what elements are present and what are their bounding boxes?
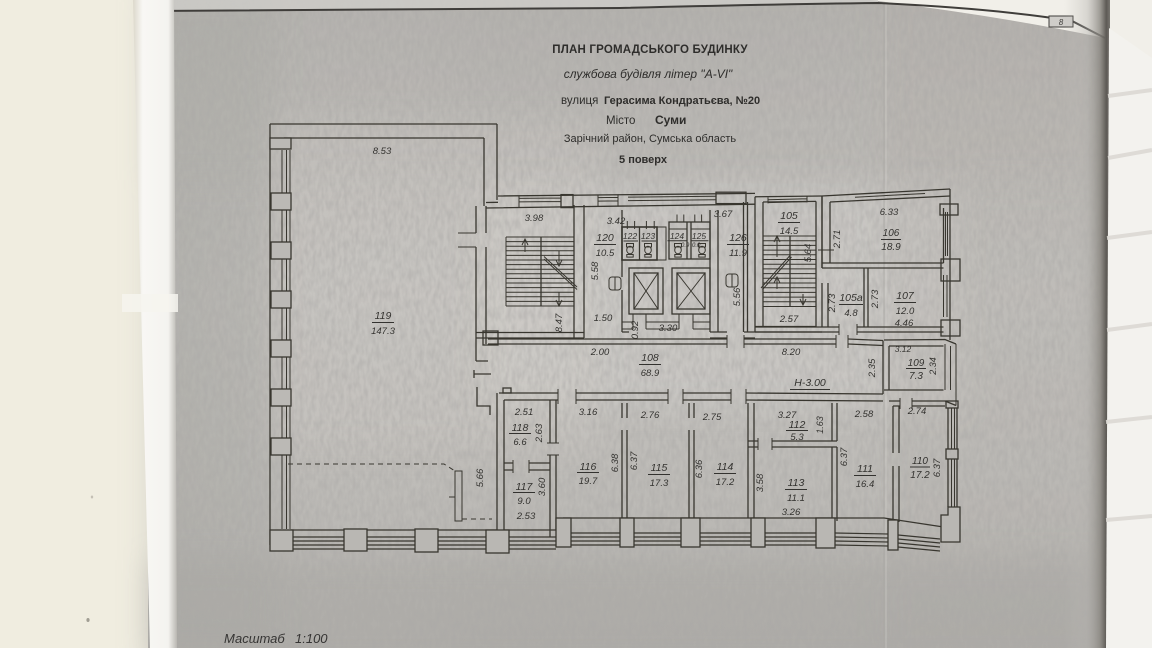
svg-text:1.50: 1.50	[594, 313, 613, 324]
svg-text:2.73: 2.73	[827, 293, 838, 313]
svg-text:1:100: 1:100	[295, 631, 328, 646]
svg-text:службова будівля літер "А-VI": службова будівля літер "А-VI"	[564, 67, 733, 81]
svg-text:2.73: 2.73	[870, 289, 881, 309]
svg-text:Герасима Кондратьєва, №20: Герасима Кондратьєва, №20	[604, 95, 760, 107]
svg-text:вулиця: вулиця	[561, 95, 598, 107]
svg-text:2.58: 2.58	[854, 409, 874, 420]
svg-text:Масштаб: Масштаб	[224, 631, 285, 646]
svg-text:4.8: 4.8	[844, 308, 858, 319]
svg-text:2.63: 2.63	[534, 423, 545, 443]
svg-text:0.0: 0.0	[692, 243, 701, 249]
svg-text:122: 122	[623, 231, 637, 241]
svg-text:110: 110	[912, 456, 928, 467]
svg-text:7.3: 7.3	[909, 371, 923, 382]
svg-text:120: 120	[596, 232, 614, 244]
svg-text:8.53: 8.53	[373, 146, 392, 157]
svg-text:11.9: 11.9	[729, 248, 748, 259]
svg-text:105: 105	[780, 210, 798, 222]
svg-text:2.35: 2.35	[867, 358, 878, 378]
svg-text:115: 115	[651, 462, 668, 474]
svg-text:2.53: 2.53	[516, 511, 536, 522]
svg-text:3.42: 3.42	[607, 216, 626, 227]
svg-text:2.00: 2.00	[590, 347, 610, 358]
svg-text:18.9: 18.9	[881, 242, 901, 253]
svg-text:ПЛАН ГРОМАДСЬКОГО БУДИНКУ: ПЛАН ГРОМАДСЬКОГО БУДИНКУ	[552, 44, 748, 56]
svg-text:Суми: Суми	[655, 113, 686, 127]
svg-text:111: 111	[857, 463, 873, 475]
svg-text:6.37: 6.37	[839, 447, 850, 466]
svg-text:3.26: 3.26	[782, 507, 801, 518]
svg-text:6.37: 6.37	[932, 458, 943, 477]
svg-text:3.30: 3.30	[659, 323, 678, 334]
svg-text:5.58: 5.58	[590, 261, 601, 280]
svg-text:117: 117	[516, 481, 534, 493]
svg-text:2.34: 2.34	[928, 357, 938, 376]
svg-text:2.74: 2.74	[907, 406, 927, 417]
svg-text:14.5: 14.5	[780, 226, 799, 237]
svg-text:6.38: 6.38	[610, 453, 621, 472]
svg-text:112: 112	[789, 419, 806, 431]
svg-text:118: 118	[512, 422, 529, 434]
svg-text:19.7: 19.7	[579, 476, 598, 487]
svg-text:8: 8	[1059, 18, 1064, 27]
svg-text:108: 108	[641, 352, 659, 364]
svg-text:Зарічний район, Сумська област: Зарічний район, Сумська область	[564, 133, 736, 145]
svg-text:6.37: 6.37	[629, 451, 640, 470]
svg-text:105а: 105а	[839, 292, 863, 304]
svg-text:3.58: 3.58	[755, 473, 766, 492]
svg-text:123: 123	[641, 231, 655, 241]
svg-text:17.3: 17.3	[650, 478, 669, 489]
svg-text:8.20: 8.20	[782, 347, 801, 358]
svg-text:119: 119	[375, 310, 392, 322]
svg-text:3.12: 3.12	[895, 344, 912, 354]
svg-text:Місто: Місто	[606, 115, 635, 127]
svg-text:0.9: 0.9	[681, 243, 690, 249]
svg-text:116: 116	[580, 461, 597, 473]
svg-text:6.6: 6.6	[513, 437, 527, 448]
svg-text:109: 109	[908, 358, 925, 369]
svg-text:2.51: 2.51	[514, 407, 534, 418]
svg-text:0.92: 0.92	[630, 320, 641, 339]
svg-text:2.75: 2.75	[702, 412, 722, 423]
svg-text:Н-3.00: Н-3.00	[794, 377, 826, 389]
svg-text:3.67: 3.67	[714, 209, 733, 220]
svg-text:2.57: 2.57	[779, 314, 799, 325]
svg-text:68.9: 68.9	[641, 368, 660, 379]
svg-text:5.64: 5.64	[803, 244, 814, 263]
svg-text:3.60: 3.60	[537, 477, 548, 496]
svg-text:9.0: 9.0	[517, 496, 531, 507]
svg-text:5.3: 5.3	[790, 432, 804, 443]
svg-text:106: 106	[883, 228, 900, 239]
svg-text:3.98: 3.98	[525, 213, 544, 224]
svg-text:5.56: 5.56	[732, 287, 743, 306]
svg-text:11.1: 11.1	[787, 493, 805, 504]
svg-text:10.5: 10.5	[596, 248, 615, 259]
svg-text:107: 107	[896, 290, 915, 302]
svg-text:17.2: 17.2	[716, 477, 735, 488]
svg-text:126: 126	[729, 232, 747, 244]
svg-text:5.66: 5.66	[475, 468, 486, 487]
svg-text:12.0: 12.0	[896, 306, 915, 317]
svg-text:147.3: 147.3	[371, 326, 395, 337]
svg-text:8.47: 8.47	[554, 313, 565, 332]
svg-text:125: 125	[692, 231, 706, 241]
svg-text:17.2: 17.2	[910, 470, 930, 481]
svg-text:4.46: 4.46	[895, 318, 914, 329]
svg-text:2.71: 2.71	[832, 230, 843, 250]
svg-text:124: 124	[670, 231, 684, 241]
svg-text:2.76: 2.76	[640, 410, 660, 421]
svg-text:6.33: 6.33	[880, 207, 899, 218]
svg-text:1.63: 1.63	[815, 416, 825, 434]
svg-text:114: 114	[717, 461, 734, 473]
svg-text:5 поверх: 5 поверх	[619, 154, 668, 166]
svg-text:3.16: 3.16	[579, 407, 598, 418]
svg-text:16.4: 16.4	[856, 479, 875, 490]
svg-text:6.36: 6.36	[694, 459, 705, 478]
svg-text:113: 113	[788, 477, 805, 489]
